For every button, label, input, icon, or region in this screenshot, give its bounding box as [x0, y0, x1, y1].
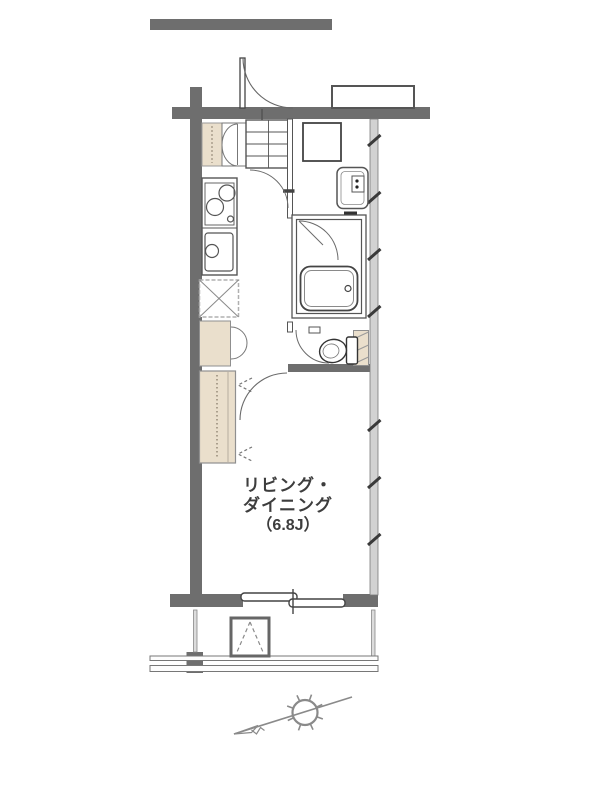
living-dining-label-line2: ダイニング: [200, 496, 376, 516]
living-dining-size: （6.8J）: [200, 516, 376, 536]
storage-cabinet: [200, 321, 231, 366]
toilet-paper-holder: [309, 327, 320, 333]
toilet-left-wall-stub: [288, 322, 293, 332]
sliding-window: [241, 589, 345, 614]
corridor-top-wall: [150, 19, 332, 30]
bathtub: [301, 267, 358, 311]
hall-door-arc: [250, 170, 288, 208]
corridor-alcove-box: [332, 86, 414, 108]
window-panel-right: [289, 599, 345, 607]
washbasin-faucet: [352, 176, 364, 192]
washing-machine-space: [303, 123, 341, 161]
toilet: [317, 337, 357, 365]
unit-bath: [292, 213, 366, 318]
north-arrow-icon: [234, 695, 352, 734]
kitchen: [202, 178, 237, 275]
toilet-tank: [347, 337, 358, 364]
window-panel-left: [241, 593, 297, 601]
floor-plan: リビング・ ダイニング （6.8J）: [0, 0, 600, 800]
storage-cabinet-door-arcs: [231, 327, 247, 359]
living-dining-label: リビング・ ダイニング （6.8J）: [200, 476, 376, 536]
floor-plan-drawing: [0, 0, 600, 800]
closet: [200, 371, 236, 463]
bottom-wall-right: [343, 594, 378, 607]
entrance-door-swing-arc: [243, 58, 293, 108]
entrance-door-leaf: [240, 58, 245, 108]
refrigerator-space: [200, 280, 239, 317]
walls: [150, 19, 430, 673]
shoe-shelf-grid: [246, 120, 291, 168]
ac-outdoor-unit: [231, 618, 269, 656]
washbasin: [337, 168, 368, 209]
entry-wash-divider-wall: [288, 119, 293, 218]
balcony: [150, 610, 378, 672]
balcony-rail-outer: [150, 666, 378, 672]
bottom-wall-left: [170, 594, 243, 607]
toilet-room: [296, 327, 358, 365]
balcony-left-divider: [194, 610, 198, 652]
living-dining-label-line1: リビング・: [200, 476, 376, 496]
balcony-right-divider: [372, 610, 376, 658]
living-dining-door-arc: [240, 373, 287, 420]
